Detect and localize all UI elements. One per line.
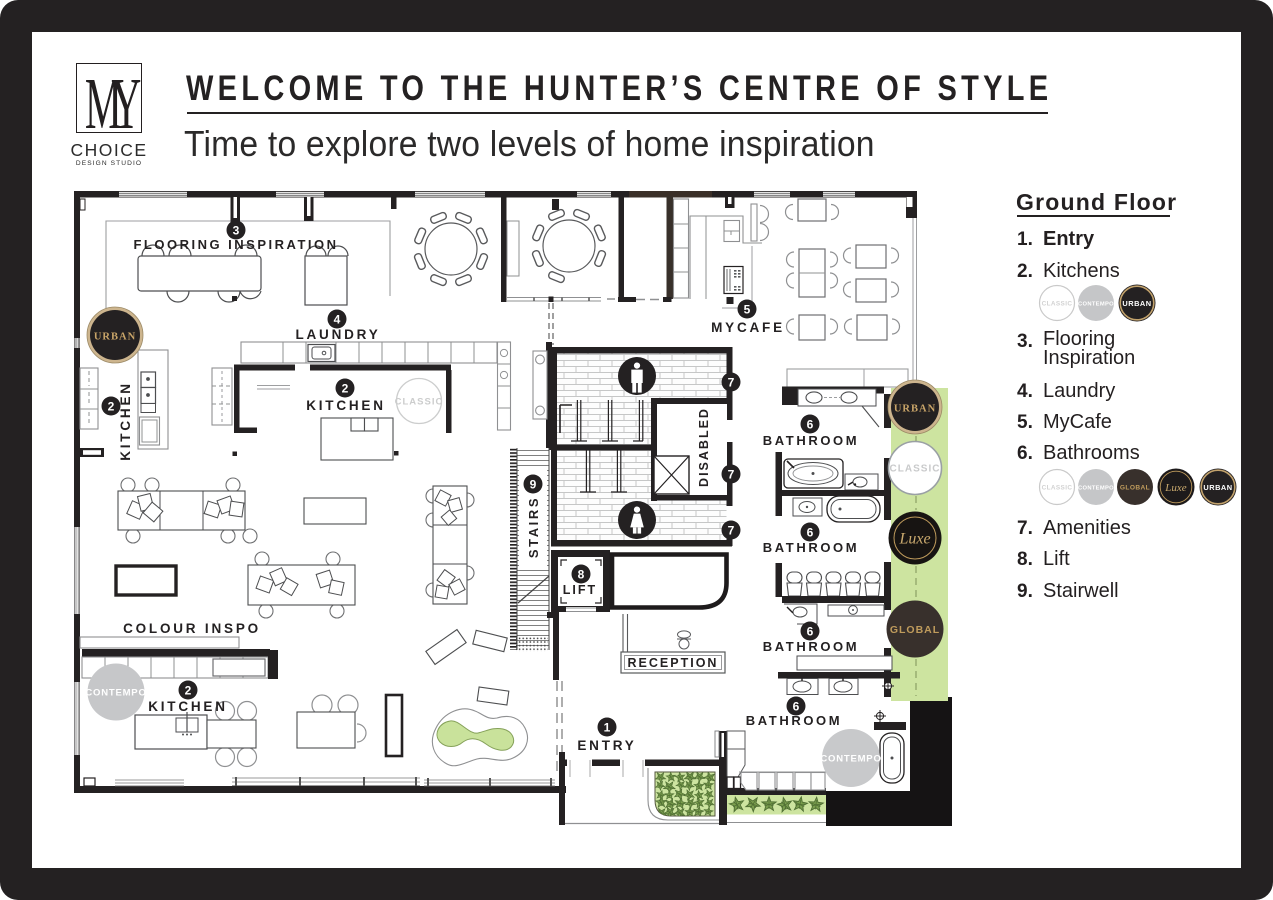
svg-text:LIFT: LIFT (563, 583, 597, 597)
svg-text:BATHROOM: BATHROOM (763, 639, 859, 654)
svg-text:4: 4 (334, 313, 341, 327)
svg-text:KITCHEN: KITCHEN (118, 381, 133, 461)
svg-text:7: 7 (728, 524, 735, 538)
svg-text:6: 6 (807, 418, 814, 432)
svg-text:URBAN: URBAN (94, 332, 136, 343)
svg-text:KITCHEN: KITCHEN (148, 699, 228, 714)
svg-text:BATHROOM: BATHROOM (763, 540, 859, 555)
svg-text:CONTEMPO: CONTEMPO (820, 754, 881, 765)
svg-text:CLASSIC: CLASSIC (890, 464, 941, 475)
svg-text:MYCAFE: MYCAFE (711, 320, 785, 335)
svg-text:RECEPTION: RECEPTION (628, 656, 719, 670)
svg-text:6: 6 (807, 625, 814, 639)
svg-text:ENTRY: ENTRY (577, 738, 636, 753)
svg-text:STAIRS: STAIRS (526, 496, 541, 558)
svg-text:5: 5 (744, 303, 751, 317)
svg-text:BATHROOM: BATHROOM (763, 433, 859, 448)
svg-text:7: 7 (728, 376, 735, 390)
svg-text:FLOORING INSPIRATION: FLOORING INSPIRATION (133, 237, 338, 252)
svg-text:URBAN: URBAN (894, 404, 936, 415)
svg-text:3: 3 (233, 224, 240, 238)
svg-text:CONTEMPO: CONTEMPO (85, 688, 146, 699)
svg-text:DISABLED: DISABLED (697, 407, 711, 487)
svg-text:BATHROOM: BATHROOM (746, 713, 842, 728)
svg-text:9: 9 (530, 478, 537, 492)
svg-text:GLOBAL: GLOBAL (890, 624, 940, 636)
svg-text:CLASSIC: CLASSIC (395, 397, 444, 408)
svg-text:1: 1 (604, 721, 611, 735)
svg-text:6: 6 (793, 700, 800, 714)
svg-text:KITCHEN: KITCHEN (306, 398, 386, 413)
svg-text:7: 7 (728, 468, 735, 482)
svg-text:6: 6 (807, 526, 814, 540)
svg-text:2: 2 (185, 684, 192, 698)
svg-text:LAUNDRY: LAUNDRY (295, 327, 380, 342)
svg-text:2: 2 (342, 382, 349, 396)
svg-text:2: 2 (108, 400, 115, 414)
svg-text:Luxe: Luxe (898, 531, 930, 548)
svg-text:8: 8 (578, 568, 585, 582)
svg-text:COLOUR INSPO: COLOUR INSPO (123, 621, 261, 636)
